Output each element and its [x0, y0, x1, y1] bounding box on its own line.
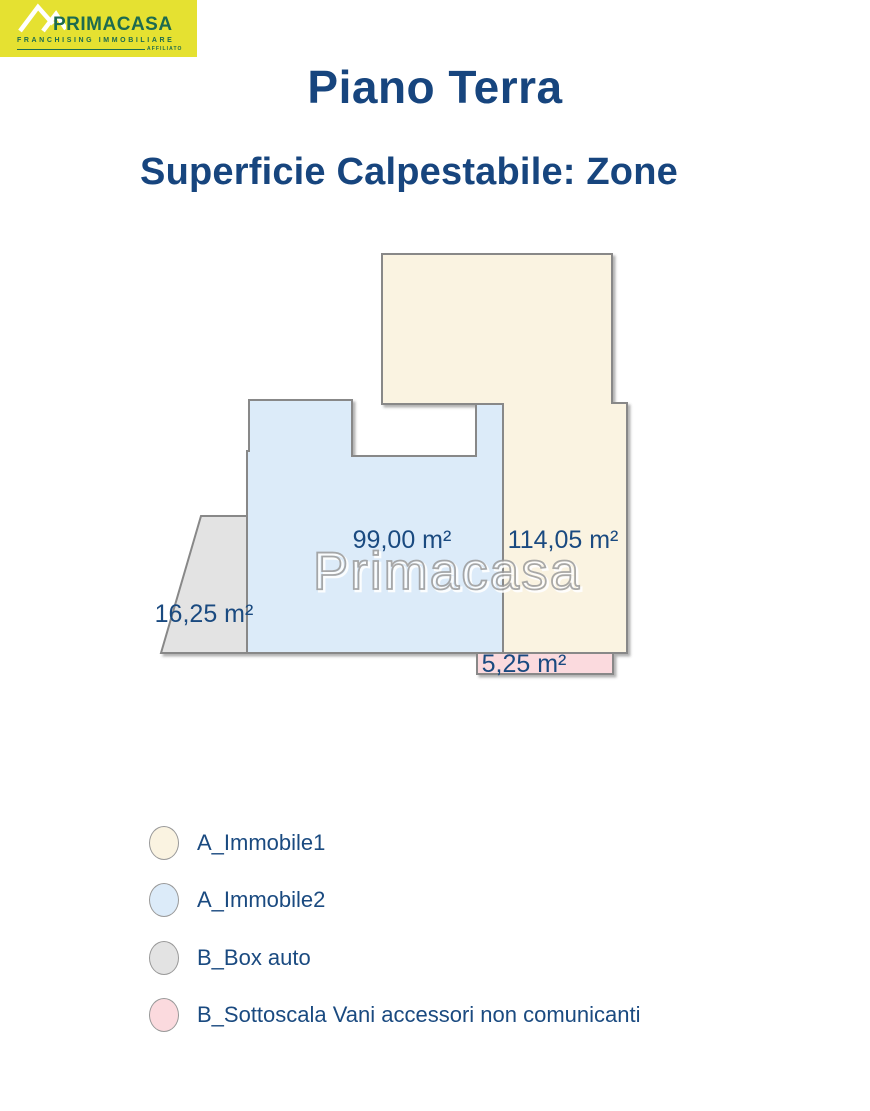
- legend-label-box-auto: B_Box auto: [197, 947, 311, 969]
- area-label-sottoscala: 5,25 m²: [482, 650, 567, 678]
- legend-swatch-immobile1: [149, 826, 179, 860]
- legend-swatch-immobile2: [149, 883, 179, 917]
- legend-label-immobile1: A_Immobile1: [197, 832, 325, 854]
- area-label-immobile2: 99,00 m²: [353, 526, 452, 554]
- zone-box-auto: [161, 516, 250, 653]
- legend-item-immobile1: A_Immobile1: [149, 826, 325, 860]
- area-label-immobile1: 114,05 m²: [508, 526, 619, 554]
- legend-swatch-sottoscala: [149, 998, 179, 1032]
- legend-label-sottoscala: B_Sottoscala Vani accessori non comunica…: [197, 1004, 641, 1026]
- legend-item-immobile2: A_Immobile2: [149, 883, 325, 917]
- legend-label-immobile2: A_Immobile2: [197, 889, 325, 911]
- legend-swatch-box-auto: [149, 941, 179, 975]
- legend-item-box-auto: B_Box auto: [149, 941, 311, 975]
- legend-item-sottoscala: B_Sottoscala Vani accessori non comunica…: [149, 998, 641, 1032]
- area-label-box-auto: 16,25 m²: [155, 600, 254, 628]
- floor-plan-drawing: Primacasa Primacasa 114,05 m² 99,00 m² 1…: [0, 0, 870, 1111]
- floor-plan-page: PRIMACASA FRANCHISING IMMOBILIARE AFFILI…: [0, 0, 870, 1111]
